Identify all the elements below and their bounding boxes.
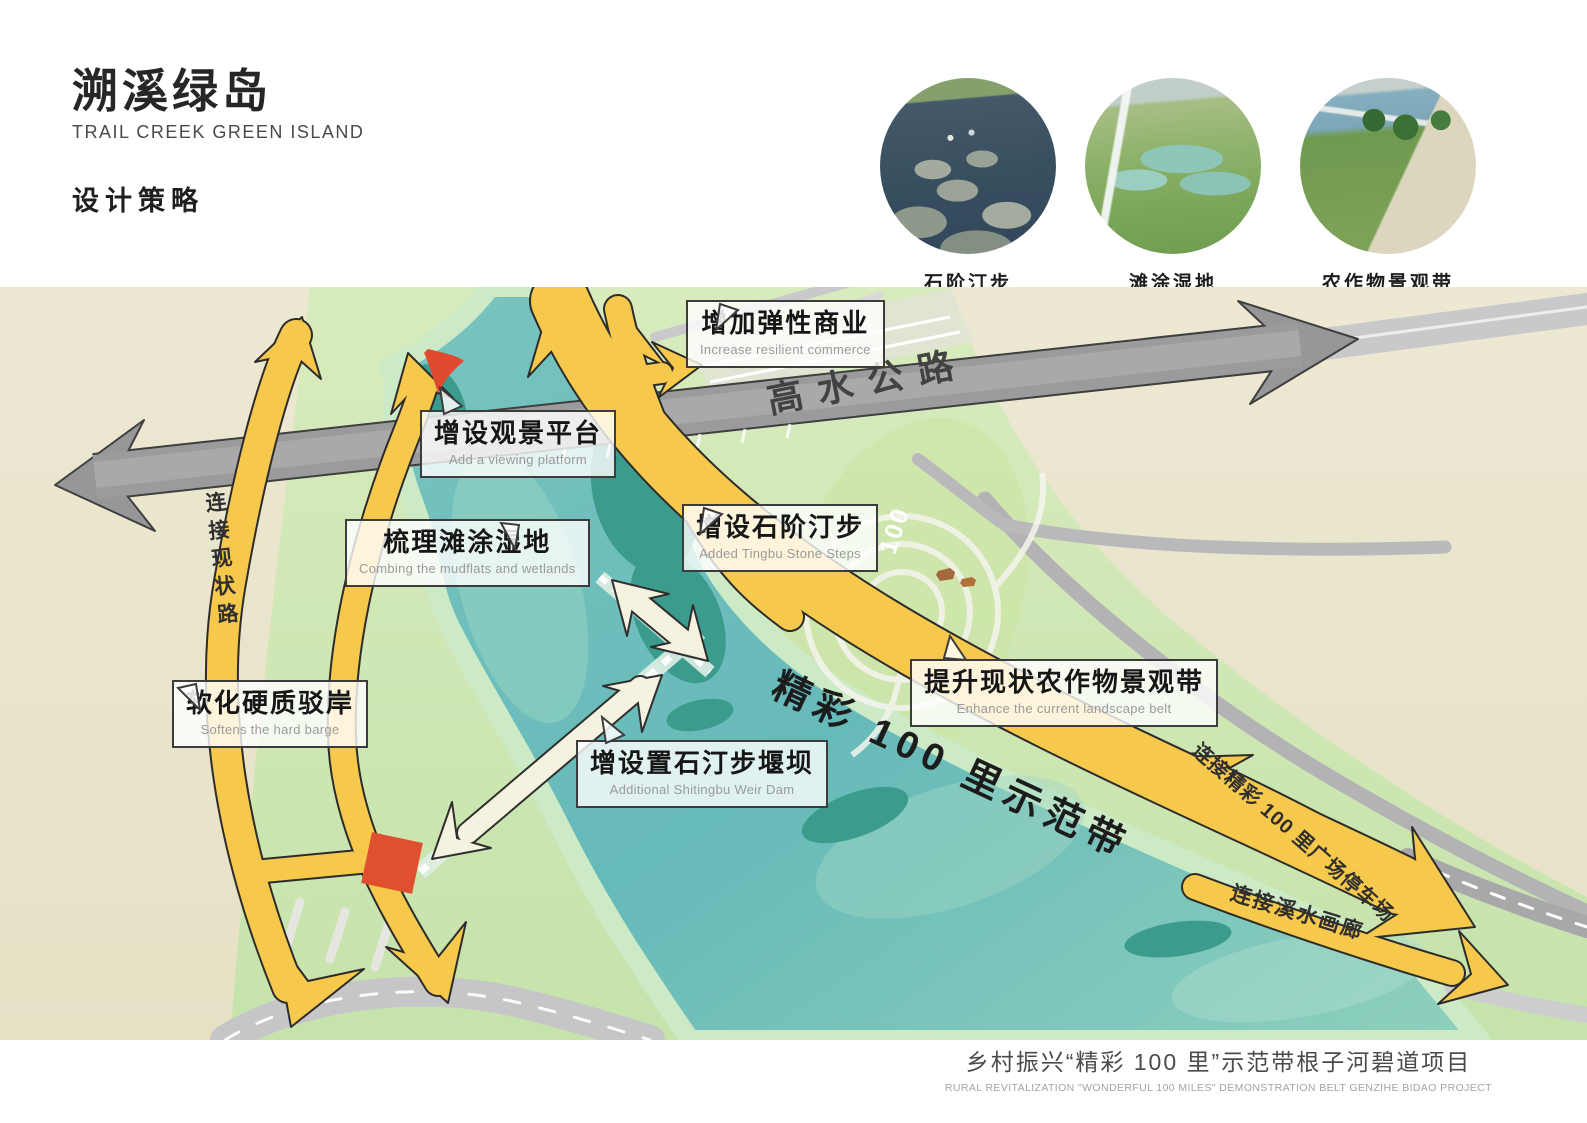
callout-subtitle: Add a viewing platform [434, 452, 602, 467]
callout-subtitle: Additional Shitingbu Weir Dam [590, 782, 814, 797]
page-title: 溯溪绿岛 [72, 68, 364, 114]
callout-viewing-platform: 增设观景平台 Add a viewing platform [420, 410, 616, 478]
callout-tail [940, 634, 970, 664]
photo-stone-steps [880, 78, 1056, 254]
callout-subtitle: Combing the mudflats and wetlands [359, 561, 576, 576]
callout-title: 增设观景平台 [434, 419, 602, 449]
callout-tail [696, 506, 726, 536]
reference-photo-stone-steps: 石阶汀步 [880, 78, 1056, 295]
callout-subtitle: Enhance the current landscape belt [924, 701, 1204, 716]
callout-crop-belt: 提升现状农作物景观带 Enhance the current landscape… [910, 659, 1218, 727]
reference-photo-wetland: 滩涂湿地 [1085, 78, 1261, 295]
callout-resilient-commerce: 增加弹性商业 Increase resilient commerce [686, 300, 885, 368]
callout-title: 梳理滩涂湿地 [359, 528, 576, 558]
slide-page: 溯溪绿岛 TRAIL CREEK GREEN ISLAND 设计策略 石阶汀步 … [0, 0, 1587, 1123]
callout-tail [174, 682, 204, 712]
photo-crop-belt [1300, 78, 1476, 254]
callout-tail [436, 386, 466, 416]
callout-title: 增设置石汀步堰坝 [590, 749, 814, 779]
callout-title: 软化硬质驳岸 [186, 689, 354, 719]
project-title-en: RURAL REVITALIZATION "WONDERFUL 100 MILE… [945, 1082, 1492, 1094]
masterplan-diagram: 高水公路 精彩 100 里示范带 连接现状路 连接精彩 100 里广场停车场 连… [0, 287, 1587, 1040]
callout-title: 提升现状农作物景观带 [924, 668, 1204, 698]
weir-dam-marker [361, 832, 423, 894]
callout-weir-dam: 增设置石汀步堰坝 Additional Shitingbu Weir Dam [576, 740, 828, 808]
callout-tail [497, 521, 527, 551]
reference-photo-crop-belt: 农作物景观带 [1300, 78, 1476, 295]
callout-subtitle: Softens the hard barge [186, 722, 354, 737]
section-title: 设计策略 [72, 179, 364, 218]
photo-wetland [1085, 78, 1261, 254]
callout-tail [598, 715, 628, 745]
page-title-en: TRAIL CREEK GREEN ISLAND [72, 122, 364, 143]
project-title-cn: 乡村振兴“精彩 100 里”示范带根子河碧道项目 [945, 1043, 1492, 1077]
callout-tail [712, 302, 742, 332]
callout-subtitle: Added Tingbu Stone Steps [696, 546, 864, 561]
callout-subtitle: Increase resilient commerce [700, 342, 871, 357]
callout-stone-steps: 增设石阶汀步 Added Tingbu Stone Steps [682, 504, 878, 572]
callout-soften-bank: 软化硬质驳岸 Softens the hard barge [172, 680, 368, 748]
callout-mudflat-wetland: 梳理滩涂湿地 Combing the mudflats and wetlands [345, 519, 590, 587]
header: 溯溪绿岛 TRAIL CREEK GREEN ISLAND 设计策略 [72, 68, 364, 218]
project-footer: 乡村振兴“精彩 100 里”示范带根子河碧道项目 RURAL REVITALIZ… [945, 1043, 1492, 1094]
